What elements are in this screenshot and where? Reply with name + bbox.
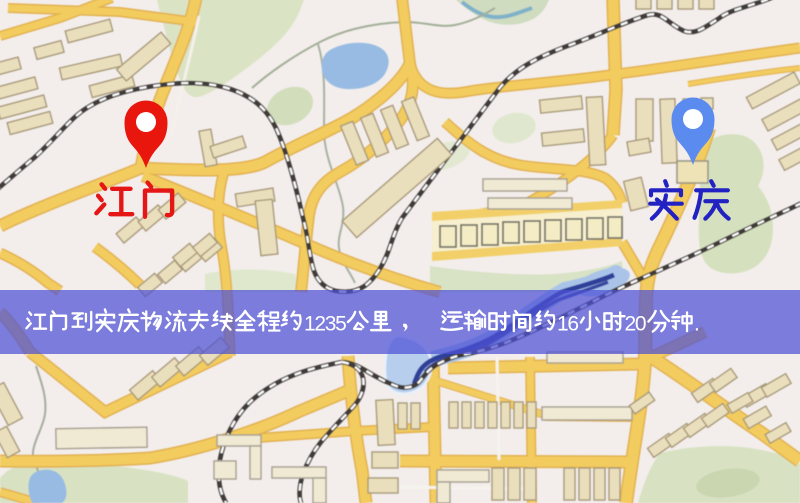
svg-text:20: 20: [625, 313, 646, 336]
svg-text:16: 16: [557, 313, 578, 336]
svg-text:.: .: [694, 313, 699, 336]
svg-text:1235: 1235: [304, 313, 346, 336]
